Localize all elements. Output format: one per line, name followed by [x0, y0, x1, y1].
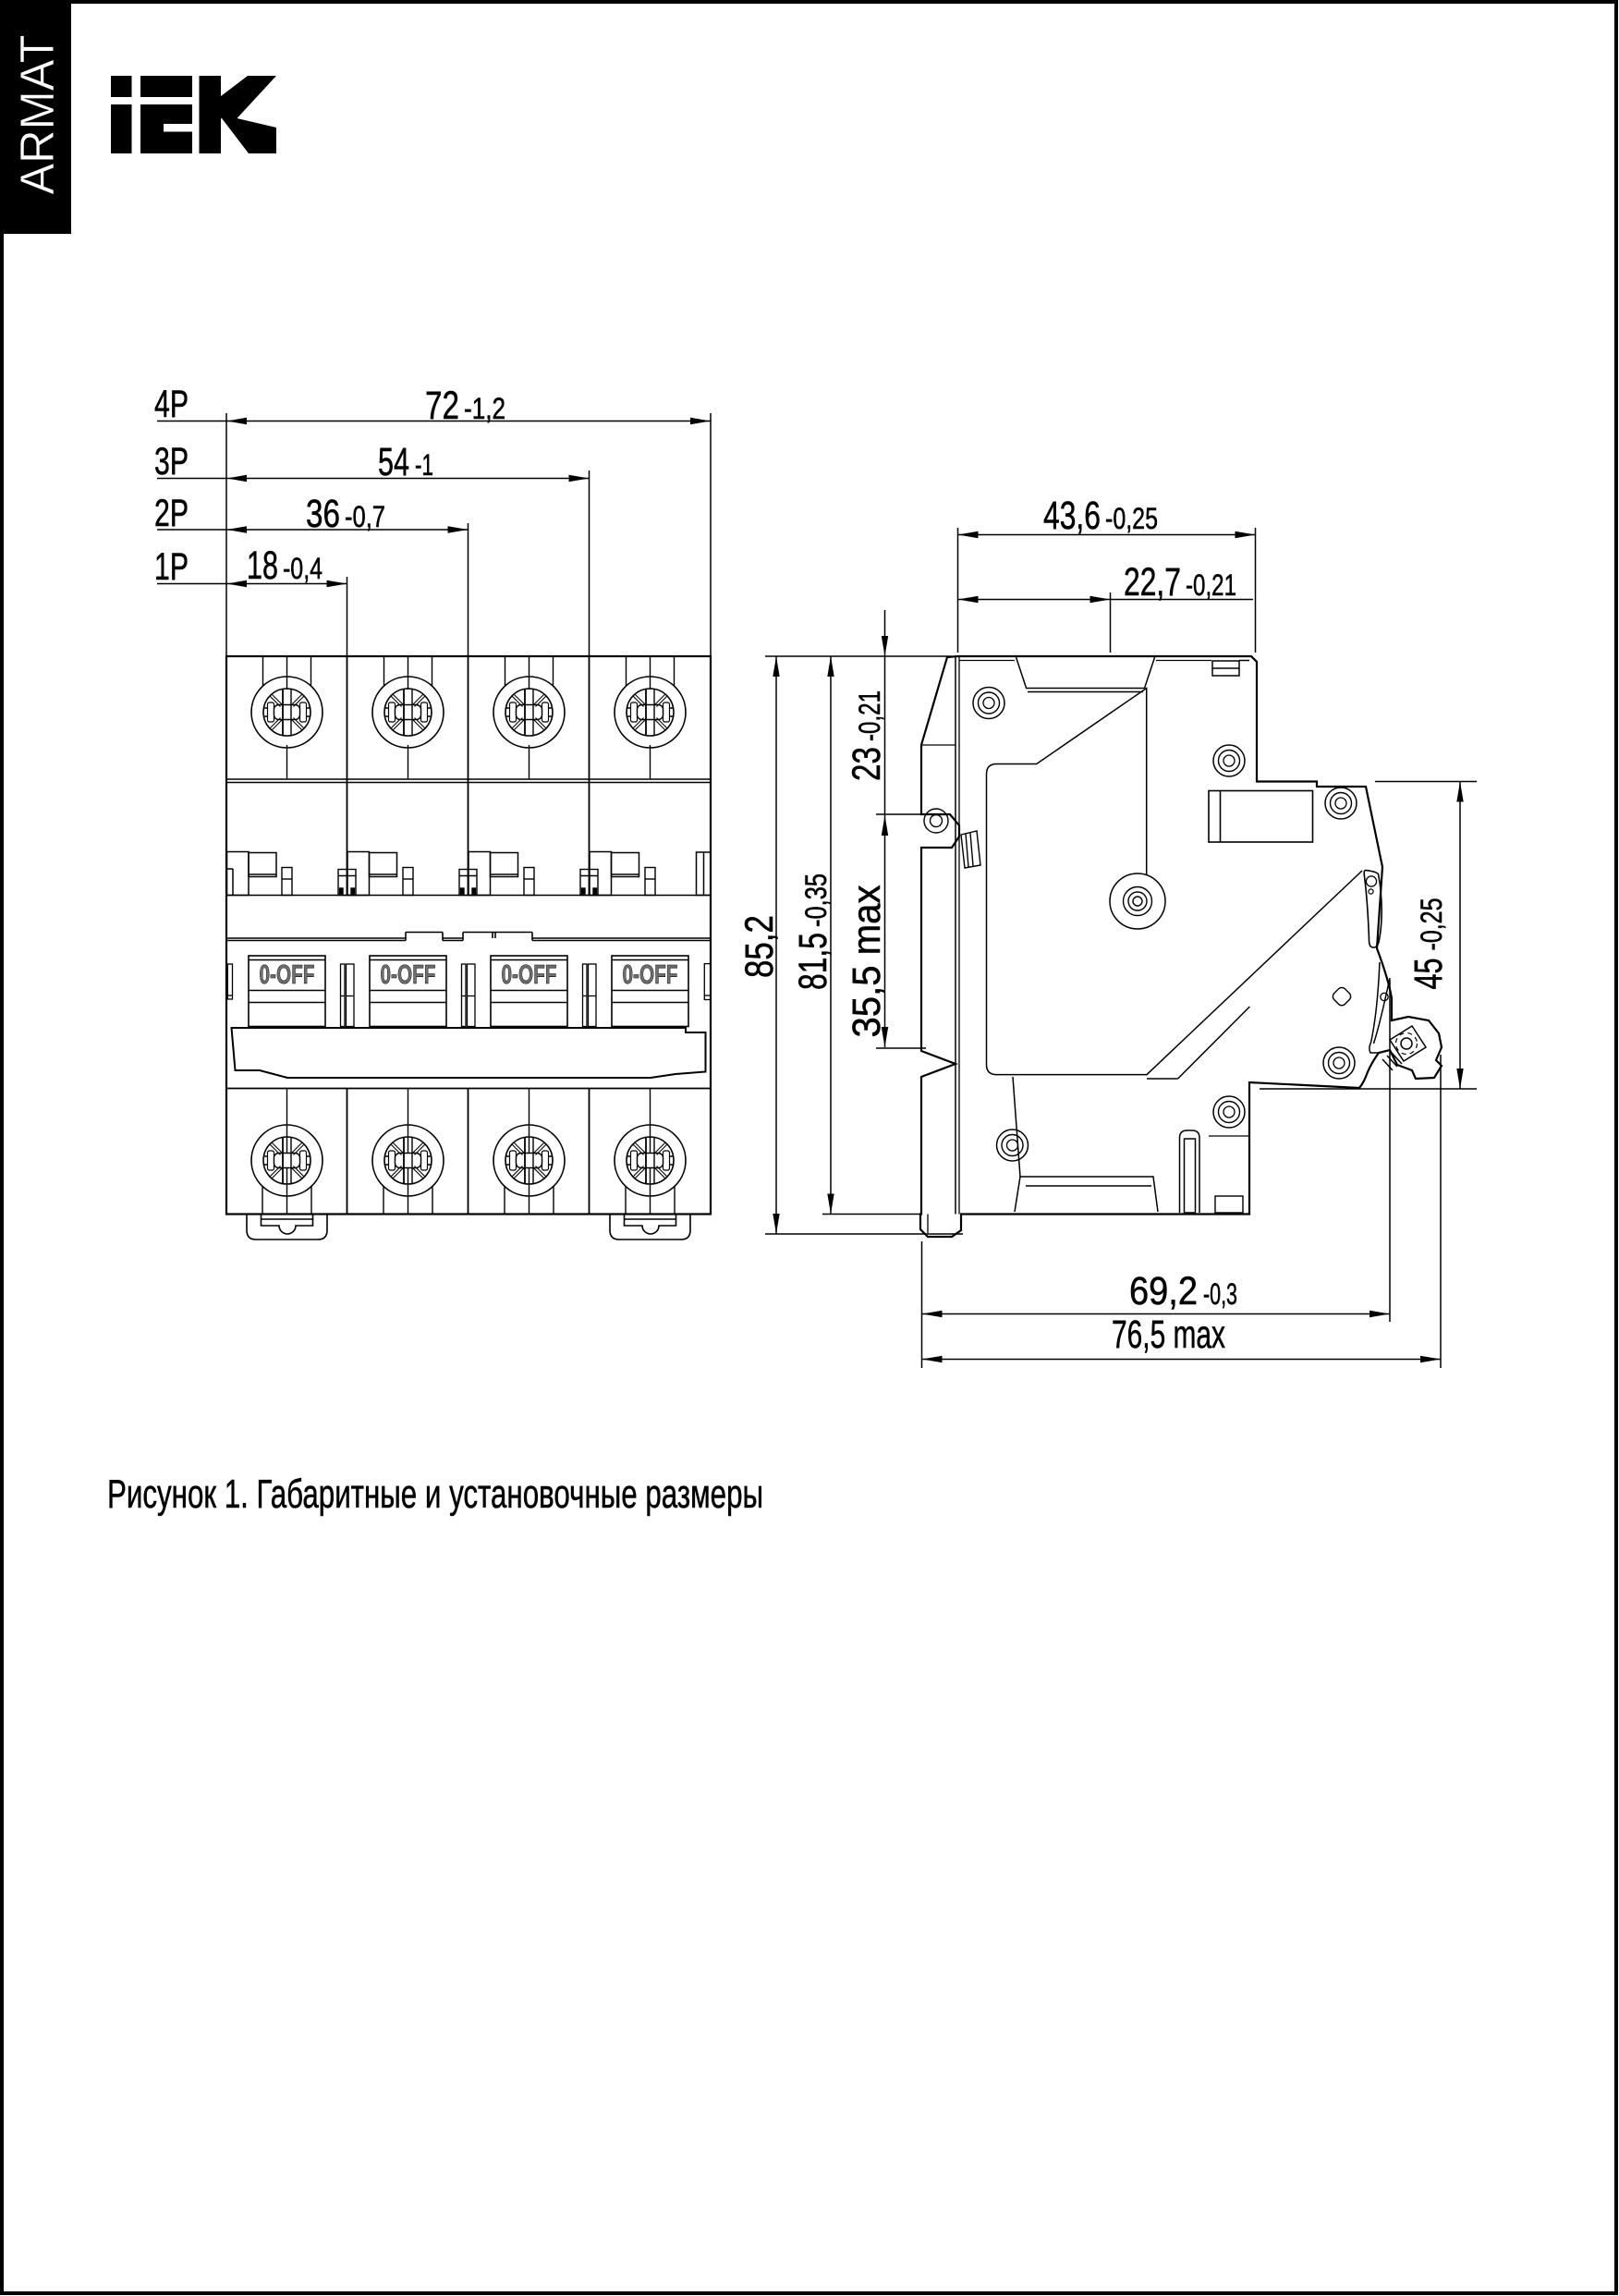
svg-text:Рисунок 1. Габаритные и устано: Рисунок 1. Габаритные и установочные раз…: [107, 1472, 763, 1517]
svg-text:76,5 max: 76,5 max: [1112, 1313, 1225, 1357]
svg-text:3P: 3P: [154, 439, 189, 482]
svg-text:0-OFF: 0-OFF: [381, 960, 436, 990]
svg-text:0-OFF: 0-OFF: [623, 960, 678, 990]
svg-text:2P: 2P: [154, 491, 189, 534]
svg-text:0-OFF: 0-OFF: [502, 960, 557, 990]
svg-text:4P: 4P: [154, 382, 189, 425]
svg-text:35,5 max: 35,5 max: [845, 885, 889, 1037]
svg-text:1P: 1P: [154, 544, 189, 588]
svg-text:0-OFF: 0-OFF: [260, 960, 315, 990]
svg-text:ARMAT: ARMAT: [11, 35, 65, 195]
svg-text:85,2: 85,2: [737, 915, 782, 978]
